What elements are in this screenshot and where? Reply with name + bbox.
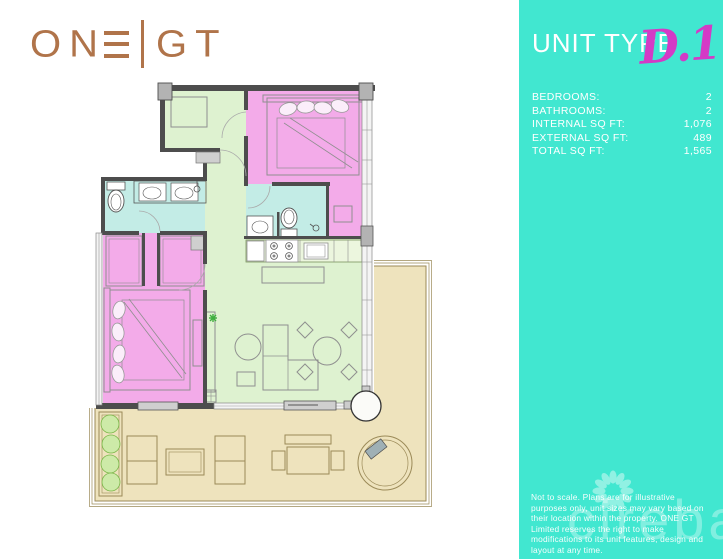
logo-divider [141,20,144,68]
spec-label: TOTAL SQ FT: [532,145,605,159]
toilet-tank [281,229,297,237]
cabinet [247,241,264,261]
toilet [108,190,124,212]
spec-value: 1,565 [684,145,712,159]
logo-on-text: ON [30,25,106,63]
toilet-tank [107,182,125,190]
unit-code: D.1 [637,15,721,74]
kitchen-sink [304,243,328,259]
floorplan-drawing [88,78,436,526]
logo-e-bars-icon [104,31,129,58]
toilet [281,208,297,228]
spec-label: EXTERNAL SQ FT: [532,132,629,146]
vanity [247,216,273,238]
unit-specs-list: BEDROOMS: 2 BATHROOMS: 2 INTERNAL SQ FT:… [532,91,712,159]
column [361,226,373,246]
disclaimer-text: Not to scale. Plans are for illustrative… [531,492,709,556]
spec-value: 2 [706,105,712,119]
spec-value: 2 [706,91,712,105]
spec-value: 1,076 [684,118,712,132]
entry-foyer [163,91,248,150]
spec-row-external-sqft: EXTERNAL SQ FT: 489 [532,132,712,146]
master-closet [328,184,362,238]
spec-row-total-sqft: TOTAL SQ FT: 1,565 [532,145,712,159]
spec-row-bedrooms: BEDROOMS: 2 [532,91,712,105]
brand-logo: ON GT [30,20,228,68]
spec-row-bathrooms: BATHROOMS: 2 [532,105,712,119]
corridor [205,150,248,262]
unit-info-sidebar: UNIT TYPE D.1 BEDROOMS: 2 BATHROOMS: 2 I… [519,0,723,559]
floorplan-brochure-page: ON GT [0,0,723,559]
spec-value: 489 [693,132,712,146]
logo-gt-text: GT [156,25,228,63]
column [359,83,373,100]
spec-row-internal-sqft: INTERNAL SQ FT: 1,076 [532,118,712,132]
entry-shelf [196,152,220,163]
column [158,83,172,100]
spec-label: BEDROOMS: [532,91,600,105]
stove [266,240,298,262]
spec-label: BATHROOMS: [532,105,606,119]
sliding-door [138,402,178,410]
spec-label: INTERNAL SQ FT: [532,118,625,132]
plant-icon [209,314,217,322]
